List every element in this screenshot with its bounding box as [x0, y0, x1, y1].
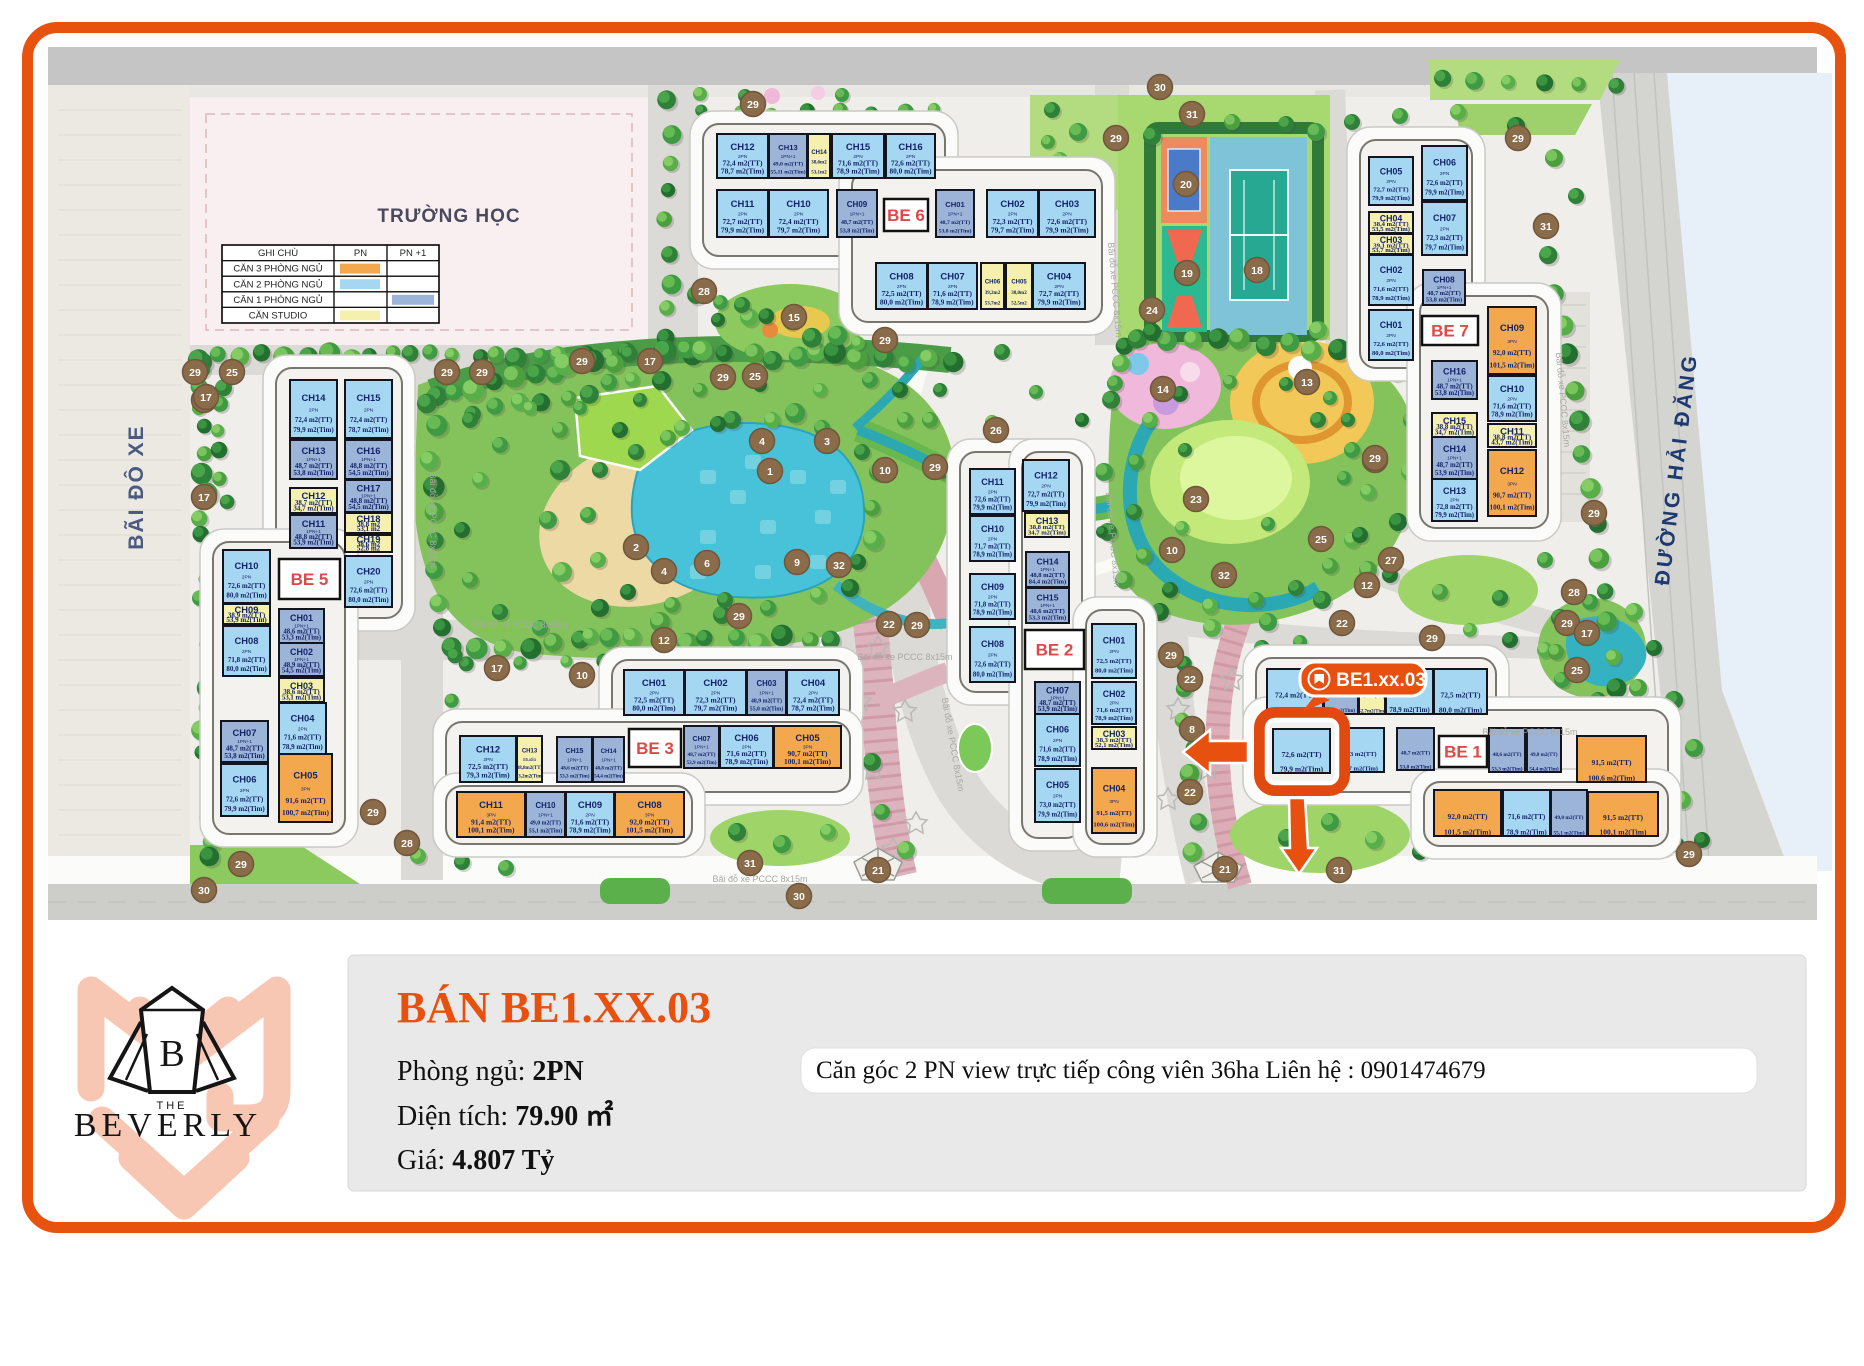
svg-text:1PN+1: 1PN+1 — [759, 690, 774, 696]
svg-text:1PN+1: 1PN+1 — [601, 757, 616, 763]
svg-text:80,0 m2(Tim): 80,0 m2(Tim) — [1372, 350, 1410, 357]
svg-text:53,2m2(Tim): 53,2m2(Tim) — [516, 774, 544, 779]
svg-text:CH14: CH14 — [811, 150, 827, 156]
svg-text:72,6 m2(TT): 72,6 m2(TT) — [228, 582, 266, 590]
svg-text:CH08: CH08 — [981, 639, 1004, 649]
svg-text:100,1 m2(Tim): 100,1 m2(Tim) — [1490, 503, 1536, 511]
svg-text:24: 24 — [1146, 305, 1158, 317]
svg-text:BE 7: BE 7 — [1431, 322, 1469, 341]
svg-text:101,5 m2(Tim): 101,5 m2(Tim) — [1490, 361, 1536, 369]
svg-text:1PN+1: 1PN+1 — [567, 757, 582, 763]
svg-text:CH15: CH15 — [566, 748, 584, 755]
svg-text:53,5 m2(Tim): 53,5 m2(Tim) — [1372, 226, 1410, 233]
svg-text:CH16: CH16 — [898, 142, 922, 153]
svg-text:CH02: CH02 — [1380, 265, 1403, 275]
svg-text:CH09: CH09 — [578, 800, 602, 811]
svg-text:CH14: CH14 — [1443, 444, 1466, 454]
svg-text:BE 3: BE 3 — [636, 739, 674, 758]
svg-text:8: 8 — [1189, 724, 1195, 736]
svg-text:90,7 m2(TT): 90,7 m2(TT) — [1493, 492, 1532, 500]
svg-text:71,7 m2(TT): 71,7 m2(TT) — [974, 543, 1010, 550]
svg-text:29: 29 — [576, 356, 588, 368]
svg-text:4: 4 — [759, 436, 765, 448]
svg-text:2PN: 2PN — [988, 489, 998, 495]
svg-text:2PN: 2PN — [364, 580, 374, 586]
svg-text:78,9 m2(Tim): 78,9 m2(Tim) — [569, 827, 611, 835]
svg-text:2PN: 2PN — [1440, 227, 1450, 233]
svg-text:53,9 m2(Tim): 53,9 m2(Tim) — [687, 759, 717, 766]
svg-text:17: 17 — [198, 492, 210, 504]
svg-text:CH08: CH08 — [637, 800, 661, 811]
svg-text:53,1 m2(Tim): 53,1 m2(Tim) — [282, 695, 321, 702]
svg-text:100,6 m2(Tim): 100,6 m2(Tim) — [1588, 774, 1635, 783]
svg-text:CH10: CH10 — [786, 199, 810, 210]
svg-text:BE 2: BE 2 — [1036, 641, 1074, 660]
svg-text:22: 22 — [1184, 674, 1196, 686]
svg-text:CH14: CH14 — [601, 748, 617, 755]
svg-text:29: 29 — [1512, 133, 1524, 145]
svg-text:72,4 m2(TT): 72,4 m2(TT) — [350, 416, 388, 424]
svg-text:CH10: CH10 — [536, 801, 557, 810]
svg-text:,3 m2(TT): ,3 m2(TT) — [1348, 751, 1376, 758]
svg-text:Bãi đỗ xe PCCC 8x15m: Bãi đỗ xe PCCC 8x15m — [472, 620, 567, 630]
svg-text:80,0 m2(Tim): 80,0 m2(Tim) — [1439, 706, 1483, 715]
svg-text:78,9 m2(Tim): 78,9 m2(Tim) — [1389, 706, 1430, 714]
svg-text:2PN: 2PN — [1507, 396, 1517, 402]
svg-text:29: 29 — [1165, 650, 1177, 662]
svg-text:53,3 m2(Tim): 53,3 m2(Tim) — [282, 635, 321, 642]
svg-text:34,7 m2(Tim): 34,7 m2(Tim) — [1435, 430, 1474, 437]
svg-text:Bãi đỗ xe PCCC 8x15m: Bãi đỗ xe PCCC 8x15m — [428, 472, 438, 567]
svg-text:53,3 m2(Tim): 53,3 m2(Tim) — [1029, 615, 1066, 622]
svg-text:48,6 m2(TT): 48,6 m2(TT) — [1493, 751, 1522, 758]
svg-text:CH13: CH13 — [522, 749, 538, 755]
svg-text:2PN: 2PN — [364, 407, 374, 413]
svg-text:54,4 m2(Tim): 54,4 m2(Tim) — [594, 775, 623, 780]
svg-text:43,7 m2(Tim): 43,7 m2(Tim) — [1491, 439, 1533, 447]
svg-text:78,9 m2(Tim): 78,9 m2(Tim) — [1491, 411, 1533, 419]
svg-text:31: 31 — [1333, 865, 1345, 877]
svg-text:CH15: CH15 — [357, 392, 381, 403]
svg-text:92,0 m2(TT): 92,0 m2(TT) — [1448, 812, 1489, 821]
svg-text:38,6m2: 38,6m2 — [811, 161, 827, 166]
svg-text:3PN: 3PN — [1109, 799, 1119, 805]
svg-text:18: 18 — [1251, 265, 1263, 277]
svg-text:53,8 m2(Tim): 53,8 m2(Tim) — [293, 469, 334, 477]
svg-text:TRƯỜNG HỌC: TRƯỜNG HỌC — [377, 205, 520, 227]
svg-text:48,7 m2(TT): 48,7 m2(TT) — [1401, 750, 1431, 757]
svg-text:72,6 m2(TT): 72,6 m2(TT) — [974, 662, 1010, 669]
svg-text:53,8 m2(Tim): 53,8 m2(Tim) — [1400, 764, 1432, 771]
svg-text:CH06: CH06 — [1046, 725, 1069, 735]
svg-text:B: B — [159, 1033, 184, 1075]
svg-text:CH07: CH07 — [1433, 213, 1456, 223]
svg-text:79,9 m2(Tim): 79,9 m2(Tim) — [1425, 190, 1464, 197]
svg-text:CH08: CH08 — [889, 272, 913, 283]
svg-text:80,0 m2(Tim): 80,0 m2(Tim) — [348, 596, 389, 604]
svg-text:23: 23 — [1190, 494, 1202, 506]
svg-text:CH05: CH05 — [795, 733, 820, 744]
svg-text:CH13: CH13 — [302, 445, 326, 456]
svg-text:54,5 m2(Tim): 54,5 m2(Tim) — [348, 503, 389, 511]
svg-text:53,8 m2(Tim): 53,8 m2(Tim) — [224, 752, 265, 760]
svg-text:CH03: CH03 — [757, 679, 778, 688]
svg-text:17: 17 — [1581, 628, 1593, 640]
svg-text:29: 29 — [441, 367, 453, 379]
svg-text:CH14: CH14 — [1037, 557, 1059, 567]
svg-text:17: 17 — [200, 392, 212, 404]
svg-text:80,0 m2(Tim): 80,0 m2(Tim) — [973, 672, 1012, 679]
svg-text:27: 27 — [1385, 555, 1397, 567]
svg-text:78,9 m2(Tim): 78,9 m2(Tim) — [973, 552, 1012, 559]
svg-text:CH08: CH08 — [1433, 275, 1455, 285]
svg-text:CĂN 1 PHÒNG NGỦ: CĂN 1 PHÒNG NGỦ — [233, 294, 322, 306]
svg-text:79,9 m2(Tim): 79,9 m2(Tim) — [721, 225, 765, 234]
svg-text:48,7 m2(TT): 48,7 m2(TT) — [841, 219, 873, 226]
svg-text:29: 29 — [235, 859, 247, 871]
svg-text:53,3 m2(Tim): 53,3 m2(Tim) — [560, 773, 590, 780]
svg-text:2PN: 2PN — [988, 653, 998, 659]
svg-text:29: 29 — [1683, 849, 1695, 861]
svg-text:CH12: CH12 — [1500, 466, 1524, 477]
svg-text:CH15: CH15 — [1037, 593, 1059, 603]
svg-text:100,7 m2(Tim): 100,7 m2(Tim) — [282, 808, 329, 817]
svg-text:10: 10 — [576, 670, 588, 682]
svg-text:CH01: CH01 — [1103, 635, 1126, 645]
svg-text:13: 13 — [1301, 377, 1313, 389]
svg-text:71,6 m2(TT): 71,6 m2(TT) — [1096, 707, 1131, 714]
svg-text:2PN: 2PN — [1386, 278, 1396, 284]
svg-text:91,5 m2(TT): 91,5 m2(TT) — [1603, 813, 1644, 822]
svg-text:6: 6 — [704, 558, 710, 570]
svg-text:PN +1: PN +1 — [400, 248, 427, 259]
svg-text:72,6 m2(TT): 72,6 m2(TT) — [1373, 341, 1408, 348]
svg-text:30: 30 — [793, 891, 805, 903]
svg-text:29: 29 — [879, 335, 891, 347]
svg-text:53,8 m2(Tim): 53,8 m2(Tim) — [939, 227, 972, 234]
svg-text:52,8 m2: 52,8 m2 — [357, 544, 381, 552]
svg-text:29: 29 — [911, 620, 923, 632]
svg-text:CH04: CH04 — [1047, 272, 1072, 283]
svg-text:CĂN 3 PHÒNG NGỦ: CĂN 3 PHÒNG NGỦ — [233, 263, 322, 275]
svg-text:Studio: Studio — [523, 757, 537, 763]
svg-text:72,4 m2(TT): 72,4 m2(TT) — [295, 416, 333, 424]
svg-text:Căn góc 2 PN view trực tiếp cô: Căn góc 2 PN view trực tiếp công viên 36… — [816, 1057, 1486, 1084]
svg-text:53,9 m2(Tim): 53,9 m2(Tim) — [293, 539, 334, 547]
svg-text:2PN: 2PN — [309, 407, 319, 413]
svg-text:1PN+1: 1PN+1 — [781, 154, 796, 160]
svg-text:CH12: CH12 — [730, 142, 754, 153]
svg-text:72,3 m2(TT): 72,3 m2(TT) — [1426, 235, 1462, 242]
svg-text:25: 25 — [1571, 665, 1583, 677]
svg-text:CH11: CH11 — [981, 477, 1004, 487]
svg-text:3PN: 3PN — [1507, 482, 1517, 488]
svg-text:14: 14 — [1157, 384, 1169, 396]
svg-text:BE 1: BE 1 — [1444, 743, 1482, 762]
svg-text:79,9 m2(Tim): 79,9 m2(Tim) — [973, 505, 1012, 512]
svg-text:38,0m2: 38,0m2 — [1011, 291, 1027, 296]
svg-text:29: 29 — [1369, 453, 1381, 465]
svg-text:79,7 m2(Tim): 79,7 m2(Tim) — [694, 704, 738, 713]
svg-text:,7 m2(Tim): ,7 m2(Tim) — [1347, 766, 1378, 773]
svg-text:29: 29 — [717, 372, 729, 384]
svg-text:29: 29 — [1110, 133, 1122, 145]
svg-text:CH09: CH09 — [1500, 323, 1524, 334]
svg-text:1: 1 — [767, 466, 773, 478]
svg-text:CH16: CH16 — [357, 445, 381, 456]
svg-text:2PN: 2PN — [242, 649, 252, 655]
svg-text:101,5 m2(Tim): 101,5 m2(Tim) — [626, 826, 673, 835]
svg-text:29: 29 — [189, 367, 201, 379]
svg-text:29: 29 — [1426, 633, 1438, 645]
svg-text:72,6 m2(TT): 72,6 m2(TT) — [974, 496, 1010, 503]
svg-text:55,1 m2(Tim): 55,1 m2(Tim) — [529, 828, 562, 835]
svg-text:12: 12 — [1361, 580, 1373, 592]
svg-text:19: 19 — [1181, 268, 1193, 280]
svg-text:22: 22 — [883, 619, 895, 631]
svg-text:48,7 m2(TT): 48,7 m2(TT) — [1436, 462, 1472, 469]
svg-text:22: 22 — [1184, 787, 1196, 799]
svg-text:28: 28 — [401, 838, 413, 850]
svg-text:BE 5: BE 5 — [291, 570, 329, 589]
svg-text:CH02: CH02 — [290, 647, 313, 657]
svg-text:54,5 m2(Tim): 54,5 m2(Tim) — [348, 469, 389, 477]
svg-text:20: 20 — [1180, 179, 1192, 191]
svg-text:1PN+1: 1PN+1 — [1447, 456, 1462, 462]
svg-text:101,5 m2(Tim): 101,5 m2(Tim) — [1444, 828, 1491, 837]
svg-text:CH05: CH05 — [293, 771, 318, 782]
svg-text:53,9 m2(Tim): 53,9 m2(Tim) — [1038, 706, 1077, 713]
svg-text:53,8 m2(Tim): 53,8 m2(Tim) — [1435, 390, 1474, 397]
svg-text:1PN+1: 1PN+1 — [538, 812, 553, 818]
svg-text:1PN+1: 1PN+1 — [694, 745, 709, 751]
svg-text:CH13: CH13 — [1443, 486, 1466, 496]
svg-text:48,9 m2(TT): 48,9 m2(TT) — [751, 697, 782, 704]
svg-text:53,7 m2(Tim): 53,7 m2(Tim) — [1372, 247, 1410, 254]
svg-text:CH16: CH16 — [1443, 367, 1466, 377]
svg-text:72,7 m2(TT): 72,7 m2(TT) — [1373, 187, 1408, 194]
svg-text:78,9 m2(Tim): 78,9 m2(Tim) — [1506, 829, 1547, 837]
svg-text:15: 15 — [788, 312, 800, 324]
svg-text:32: 32 — [833, 560, 845, 572]
svg-text:38,8m2(TT): 38,8m2(TT) — [517, 766, 543, 771]
svg-text:CH07: CH07 — [233, 727, 257, 738]
svg-text:3: 3 — [824, 436, 830, 448]
svg-text:CĂN STUDIO: CĂN STUDIO — [249, 311, 308, 322]
svg-text:CH15: CH15 — [846, 142, 871, 153]
svg-text:25: 25 — [749, 371, 761, 383]
svg-text:100,1 m2(Tim): 100,1 m2(Tim) — [468, 826, 515, 835]
svg-text:10: 10 — [1166, 545, 1178, 557]
svg-text:CH04: CH04 — [291, 712, 316, 723]
svg-text:BÃI ÐÔ XE: BÃI ÐÔ XE — [124, 424, 148, 549]
svg-text:3PN: 3PN — [1507, 339, 1517, 345]
svg-text:1PN+1: 1PN+1 — [948, 211, 963, 217]
svg-text:78,9 m2(Tim): 78,9 m2(Tim) — [1372, 295, 1410, 302]
svg-text:CH11: CH11 — [479, 800, 503, 811]
svg-text:25: 25 — [1315, 534, 1327, 546]
svg-text:79,9 m2(Tim): 79,9 m2(Tim) — [1037, 297, 1081, 306]
svg-text:CH10: CH10 — [235, 560, 259, 571]
svg-text:31: 31 — [1540, 221, 1552, 233]
svg-text:10: 10 — [879, 465, 891, 477]
svg-text:CH06: CH06 — [1433, 157, 1456, 167]
svg-text:54,5 m2(Tim): 54,5 m2(Tim) — [282, 668, 321, 675]
svg-text:Phòng ngủ: 2PN: Phòng ngủ: 2PN — [397, 1056, 584, 1087]
svg-text:78,9 m2(Tim): 78,9 m2(Tim) — [725, 757, 769, 766]
svg-text:29: 29 — [1561, 618, 1573, 630]
svg-text:2PN: 2PN — [1386, 333, 1396, 339]
svg-text:71,8 m2(TT): 71,8 m2(TT) — [228, 656, 266, 664]
svg-text:GHI CHÙ: GHI CHÙ — [258, 248, 298, 259]
svg-text:55,0 m2(Tim): 55,0 m2(Tim) — [750, 706, 783, 713]
svg-text:80,0 m2(Tim): 80,0 m2(Tim) — [880, 297, 924, 306]
svg-text:BEVERLY: BEVERLY — [74, 1107, 262, 1144]
svg-text:100,6 m2(Tim): 100,6 m2(Tim) — [1093, 822, 1134, 829]
svg-text:55,1 m2(Tim): 55,1 m2(Tim) — [1553, 830, 1584, 837]
svg-text:Diện tích: 79.90 ㎡: Diện tích: 79.90 ㎡ — [397, 1099, 613, 1132]
svg-text:52,1 m2(Tim): 52,1 m2(Tim) — [1095, 742, 1133, 749]
svg-text:53,8 m2(Tim): 53,8 m2(Tim) — [1426, 297, 1462, 304]
svg-text:2PN: 2PN — [988, 536, 998, 542]
svg-text:71,6 m2(TT): 71,6 m2(TT) — [1373, 286, 1408, 293]
svg-text:CH12: CH12 — [1034, 470, 1058, 480]
svg-text:53,3 m2(Tim): 53,3 m2(Tim) — [1491, 766, 1522, 773]
svg-text:CH11: CH11 — [302, 518, 325, 529]
svg-text:78,9 m2(Tim): 78,9 m2(Tim) — [1038, 756, 1077, 763]
svg-text:48,7 m2(TT): 48,7 m2(TT) — [688, 751, 716, 758]
svg-text:17: 17 — [491, 663, 503, 675]
svg-text:1PN+1: 1PN+1 — [850, 211, 865, 217]
svg-text:78,7 m2(Tim): 78,7 m2(Tim) — [721, 167, 765, 176]
svg-text:29: 29 — [733, 611, 745, 623]
svg-text:30: 30 — [1154, 82, 1166, 94]
svg-text:12: 12 — [658, 635, 670, 647]
svg-text:CH02: CH02 — [703, 678, 727, 689]
svg-text:49,8 m2(TT): 49,8 m2(TT) — [1530, 751, 1557, 758]
svg-text:29: 29 — [1588, 508, 1600, 520]
svg-text:91,5 m2(TT): 91,5 m2(TT) — [1096, 810, 1131, 817]
svg-text:78,9 m2(Tim): 78,9 m2(Tim) — [931, 297, 974, 306]
svg-text:48,7 m2(TT): 48,7 m2(TT) — [940, 219, 970, 226]
svg-text:80,0 m2(Tim): 80,0 m2(Tim) — [226, 592, 267, 600]
svg-text:84,4 m2(Tim): 84,4 m2(Tim) — [1029, 579, 1066, 586]
svg-text:Bãi đỗ xe PCCC 8x15m: Bãi đỗ xe PCCC 8x15m — [1482, 727, 1577, 737]
svg-text:34,7 m2(Tim): 34,7 m2(Tim) — [293, 505, 334, 513]
svg-text:71,6 m2(TT): 71,6 m2(TT) — [1039, 746, 1075, 753]
svg-text:80,0 m2(Tim): 80,0 m2(Tim) — [889, 167, 932, 176]
svg-text:78,9 m2(Tim): 78,9 m2(Tim) — [836, 167, 880, 176]
svg-text:2PN: 2PN — [1053, 794, 1063, 800]
svg-text:53,1 m2: 53,1 m2 — [357, 525, 381, 533]
svg-text:2PN: 2PN — [242, 575, 252, 581]
svg-text:53,8 m2(Tim): 53,8 m2(Tim) — [840, 227, 875, 234]
svg-text:4: 4 — [661, 566, 667, 578]
svg-text:2PN: 2PN — [1450, 498, 1460, 504]
svg-text:CH05: CH05 — [1011, 280, 1027, 286]
svg-text:49,0 m2(TT): 49,0 m2(TT) — [530, 819, 561, 826]
svg-text:28: 28 — [1568, 587, 1580, 599]
svg-text:31: 31 — [744, 858, 756, 870]
svg-text:CH03: CH03 — [1055, 199, 1079, 210]
svg-text:Bãi đỗ xe PCCC 8x15m: Bãi đỗ xe PCCC 8x15m — [857, 652, 952, 662]
svg-text:28: 28 — [698, 286, 710, 298]
svg-text:CH08: CH08 — [235, 635, 259, 646]
svg-text:32: 32 — [1218, 570, 1230, 582]
svg-text:2PN: 2PN — [585, 812, 595, 818]
svg-text:CH10: CH10 — [1500, 384, 1524, 395]
svg-text:CH13: CH13 — [778, 143, 797, 152]
svg-text:54,4 m2(Tim): 54,4 m2(Tim) — [1529, 766, 1559, 773]
svg-text:79,9 m2(Tim): 79,9 m2(Tim) — [293, 426, 334, 434]
svg-text:CĂN 2 PHÒNG NGỦ: CĂN 2 PHÒNG NGỦ — [233, 278, 322, 290]
svg-text:26: 26 — [990, 425, 1002, 437]
svg-text:71,8 m2(TT): 71,8 m2(TT) — [974, 601, 1010, 608]
svg-text:2PN: 2PN — [1041, 484, 1051, 490]
svg-text:78,9 m2(Tim): 78,9 m2(Tim) — [282, 743, 323, 751]
svg-text:100,1 m2(Tim): 100,1 m2(Tim) — [1600, 828, 1647, 837]
svg-text:CH04: CH04 — [1103, 783, 1126, 793]
svg-text:29: 29 — [367, 807, 379, 819]
svg-text:53,7m2: 53,7m2 — [985, 301, 1001, 306]
svg-text:34,7 m2(Tim): 34,7 m2(Tim) — [1028, 530, 1066, 537]
svg-text:72,5 m2(TT): 72,5 m2(TT) — [1096, 658, 1131, 665]
svg-text:CH01: CH01 — [642, 678, 667, 689]
svg-text:79,7 m2(Tim): 79,7 m2(Tim) — [991, 225, 1035, 234]
svg-text:73,0 m2(TT): 73,0 m2(TT) — [1039, 802, 1075, 809]
svg-text:80,0 m2(Tim): 80,0 m2(Tim) — [1095, 668, 1133, 675]
svg-text:CH06: CH06 — [233, 774, 257, 785]
svg-text:72,6 m2(TT): 72,6 m2(TT) — [350, 587, 388, 595]
svg-text:78,9 m2(Tim): 78,9 m2(Tim) — [1095, 715, 1133, 722]
svg-text:71,6 m2(TT): 71,6 m2(TT) — [571, 818, 610, 826]
svg-text:71,6 m2(TT): 71,6 m2(TT) — [284, 734, 322, 742]
svg-text:39,2m2: 39,2m2 — [985, 291, 1001, 296]
svg-text:CH09: CH09 — [847, 200, 868, 209]
svg-text:78,7 m2(Tim): 78,7 m2(Tim) — [348, 426, 389, 434]
svg-text:72,6 m2(TT): 72,6 m2(TT) — [1426, 180, 1462, 187]
svg-text:78,7 m2(Tim): 78,7 m2(Tim) — [791, 704, 835, 713]
svg-text:80,0 m2(Tim): 80,0 m2(Tim) — [632, 704, 676, 713]
svg-text:72,7 m2(TT): 72,7 m2(TT) — [1028, 492, 1065, 499]
svg-text:CH01: CH01 — [1380, 320, 1403, 330]
svg-text:CH17: CH17 — [357, 483, 381, 494]
svg-text:Giá: 4.807 Tỷ: Giá: 4.807 Tỷ — [397, 1145, 554, 1176]
svg-text:52,5m2: 52,5m2 — [1011, 301, 1027, 306]
svg-text:79,9 m2(Tim): 79,9 m2(Tim) — [1435, 512, 1474, 519]
svg-text:80,0 m2(Tim): 80,0 m2(Tim) — [226, 665, 267, 673]
svg-text:29: 29 — [476, 367, 488, 379]
svg-text:BE 6: BE 6 — [887, 206, 925, 225]
svg-text:91,5 m2(TT): 91,5 m2(TT) — [1592, 758, 1633, 767]
svg-text:53,9 m2(Tim): 53,9 m2(Tim) — [226, 616, 267, 624]
svg-text:9: 9 — [794, 557, 800, 569]
svg-text:CH01: CH01 — [290, 613, 313, 623]
svg-text:2PN: 2PN — [1109, 701, 1119, 707]
svg-text:2PN: 2PN — [1386, 179, 1396, 185]
svg-text:CH12: CH12 — [476, 745, 500, 756]
svg-text:29: 29 — [747, 99, 759, 111]
svg-text:22: 22 — [1336, 618, 1348, 630]
svg-text:31: 31 — [1186, 109, 1198, 121]
svg-text:79,9 m2(Tim): 79,9 m2(Tim) — [1026, 501, 1066, 508]
svg-text:3PN: 3PN — [301, 787, 311, 793]
svg-text:25: 25 — [226, 367, 238, 379]
svg-text:CH07: CH07 — [1046, 686, 1069, 696]
svg-text:CH06: CH06 — [734, 733, 758, 744]
svg-text:48,8 m2(TT): 48,8 m2(TT) — [595, 766, 622, 771]
svg-text:CH05: CH05 — [1046, 780, 1069, 790]
